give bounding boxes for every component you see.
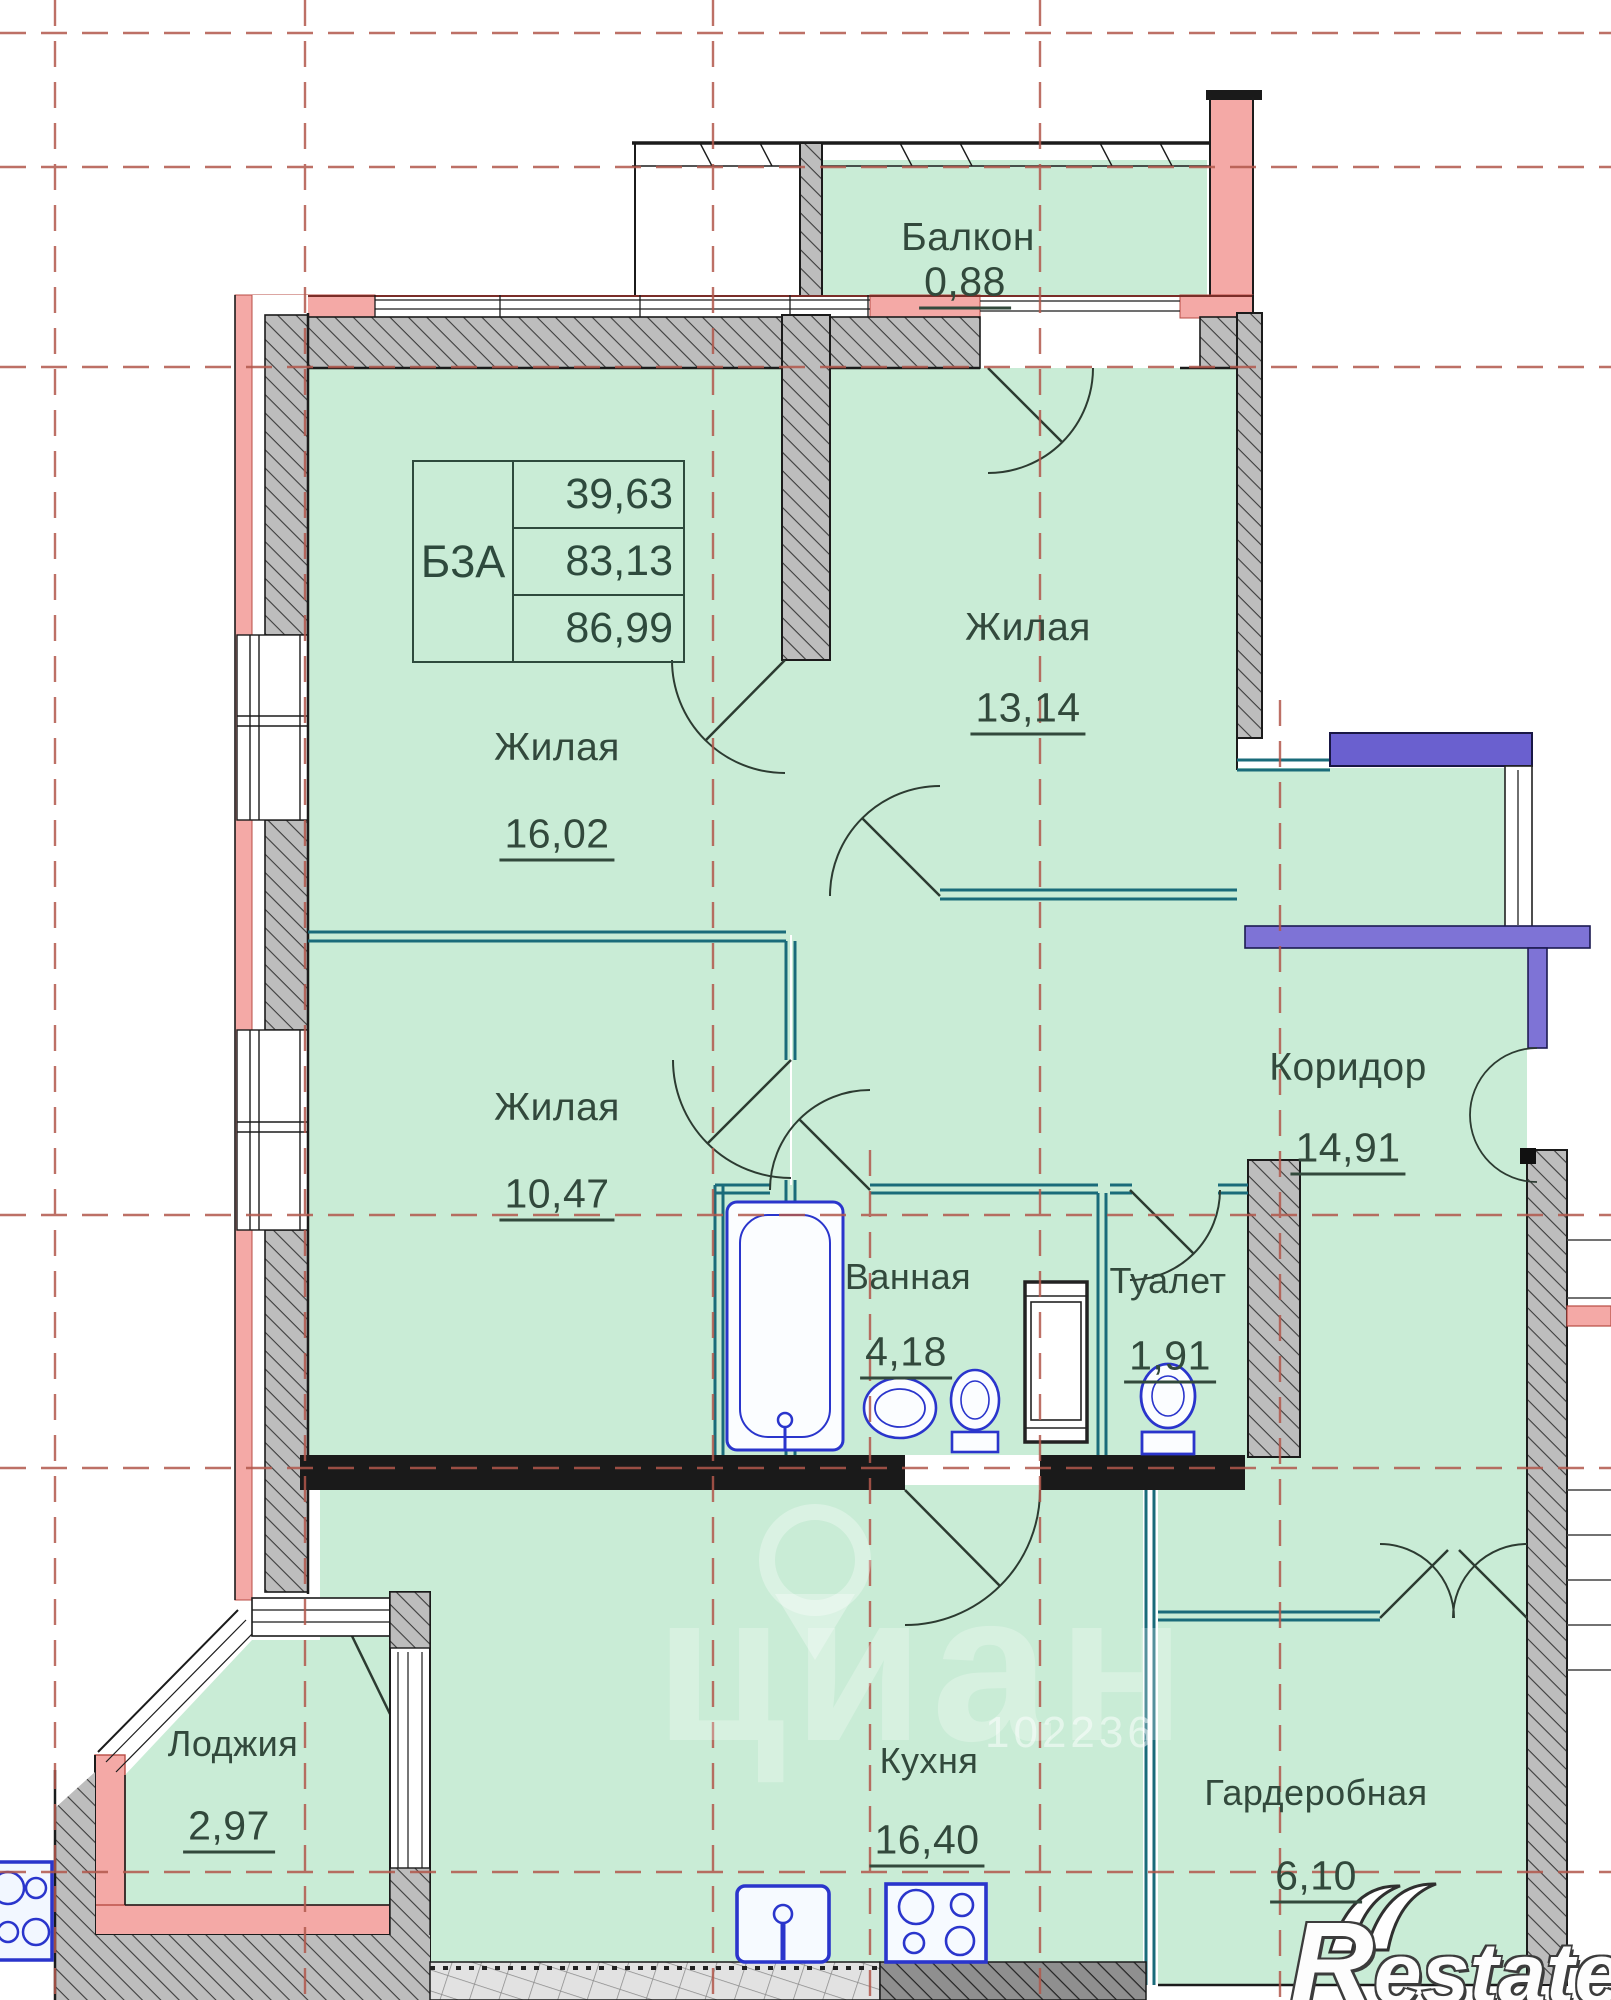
label-wc: Туалет <box>1110 1260 1227 1302</box>
label-bathroom-area: 4,18 <box>860 1329 952 1376</box>
room-area: 16,02 <box>499 811 614 862</box>
unit-code: Б3А <box>413 461 513 662</box>
unit-info-table: Б3А 39,63 83,13 86,99 <box>412 460 685 663</box>
listing-id-watermark: 102236 <box>985 1708 1156 1758</box>
room-area: 1,91 <box>1124 1333 1216 1384</box>
entrance-door-leaf <box>1528 948 1547 1048</box>
vent-shaft <box>1025 1282 1087 1442</box>
room-name: Жилая <box>965 606 1091 649</box>
room-area: 4,18 <box>860 1329 952 1380</box>
lintel-bar <box>1330 733 1532 766</box>
restate-rest: estate <box>1374 1926 1611 2000</box>
label-room-1314: Жилая <box>965 606 1091 650</box>
label-room-1602-area: 16,02 <box>499 811 614 858</box>
room-area: 0,88 <box>919 259 1011 310</box>
unit-living-area: 39,63 <box>513 461 684 528</box>
room-area: 13,14 <box>970 685 1085 736</box>
unit-area: 83,13 <box>513 528 684 595</box>
label-bathroom: Ванная <box>845 1256 971 1298</box>
room-area: 16,40 <box>869 1817 984 1868</box>
label-balcony-area: 0,88 <box>919 259 1011 306</box>
room-name: Балкон <box>901 216 1035 259</box>
room-name: Ванная <box>845 1256 971 1297</box>
label-kitchen: Кухня <box>880 1740 979 1782</box>
room-area: 10,47 <box>499 1171 614 1222</box>
west-window-2 <box>237 1030 308 1230</box>
label-wardrobe: Гардеробная <box>1204 1772 1427 1814</box>
floor-plan-canvas: Балкон 0,88 Жилая 13,14 Жилая 16,02 Жила… <box>0 0 1611 2000</box>
label-room-1047-area: 10,47 <box>499 1171 614 1218</box>
label-wc-area: 1,91 <box>1124 1333 1216 1380</box>
label-balcony: Балкон <box>901 216 1035 260</box>
north-wall <box>235 295 1253 368</box>
neighbor-stove <box>0 1862 52 1960</box>
room-name: Туалет <box>1110 1260 1227 1301</box>
stairwell <box>1567 1240 1611 1670</box>
room-name: Кухня <box>880 1740 979 1781</box>
room-name: Коридор <box>1269 1046 1427 1089</box>
label-room-1602: Жилая <box>494 726 620 770</box>
room-name: Лоджия <box>168 1723 299 1764</box>
west-wall <box>235 295 308 1600</box>
entrance-wall-purple <box>1245 926 1590 948</box>
restate-watermark: Restate <box>1290 1896 1611 2000</box>
label-loggia-area: 2,97 <box>183 1803 275 1850</box>
label-room-1047: Жилая <box>494 1086 620 1130</box>
label-loggia: Лоджия <box>168 1723 299 1765</box>
room-name: Гардеробная <box>1204 1772 1427 1813</box>
room-name: Жилая <box>494 1086 620 1129</box>
room-area: 14,91 <box>1290 1125 1405 1176</box>
label-corridor-area: 14,91 <box>1290 1125 1405 1172</box>
restate-initial: R <box>1290 1898 1374 2000</box>
label-corridor: Коридор <box>1269 1046 1427 1090</box>
toilet-bathroom <box>951 1370 999 1430</box>
west-window-1 <box>237 635 308 820</box>
label-kitchen-area: 16,40 <box>869 1817 984 1864</box>
unit-total-area: 86,99 <box>513 595 684 662</box>
room-area: 2,97 <box>183 1803 275 1854</box>
label-room-1314-area: 13,14 <box>970 685 1085 732</box>
room-name: Жилая <box>494 726 620 769</box>
label-wardrobe-area: 6,10 <box>1270 1853 1362 1900</box>
